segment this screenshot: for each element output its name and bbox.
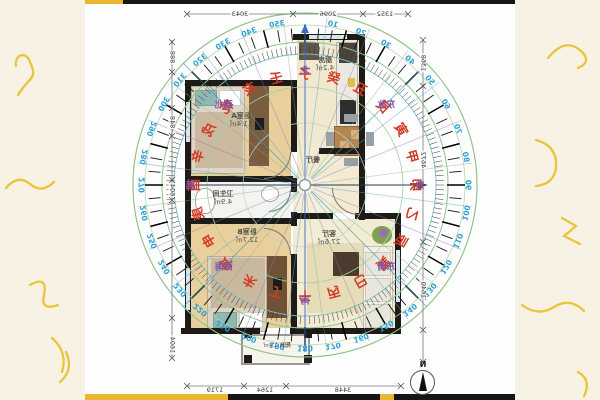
degree-label: 210 — [214, 318, 232, 334]
degree-label: 320 — [191, 52, 209, 69]
room-label-bedroom-b: 卧室B 12.7㎡ — [236, 228, 259, 244]
degree-label: 70 — [452, 123, 464, 136]
dim-bottom-2: 1264 — [256, 387, 275, 394]
room-label-balcony: 阳台 1.4㎡ — [263, 343, 290, 349]
degree-label: 260 — [139, 205, 151, 222]
degree-label: 150 — [377, 318, 395, 334]
room-area: 12.7㎡ — [236, 236, 259, 244]
room-area: 4.9㎡ — [213, 198, 234, 206]
degree-label: 80 — [460, 151, 471, 163]
room-area: 1.4㎡ — [263, 343, 277, 349]
degree-label: 60 — [440, 97, 453, 111]
degree-label: 20 — [354, 26, 367, 38]
degree-label: 350 — [268, 19, 285, 31]
degree-label: 280 — [139, 148, 151, 165]
mountain-label: 丁 — [267, 282, 284, 304]
floorplan-compass-screenshot: { "colors": { "page_bg": "#f7f2e3", "pan… — [0, 0, 600, 400]
degree-label: 120 — [438, 257, 454, 275]
room-label-bedroom-a: 卧室A 11.4㎡ — [230, 112, 253, 128]
degree-label: 90 — [464, 180, 473, 190]
degree-label: 10 — [327, 19, 339, 30]
room-name: 客厅 — [318, 230, 341, 238]
direction-label: 东北 — [377, 97, 395, 110]
direction-label: 南 — [300, 294, 309, 307]
dim-left-2: 848 — [169, 115, 176, 129]
north-label: N — [417, 360, 429, 369]
room-name: 餐厅 — [306, 156, 320, 164]
room-name: 卧室B — [236, 228, 259, 236]
mountain-label: 辰 — [391, 231, 414, 252]
degree-label: 290 — [145, 120, 159, 138]
room-name: 卫生间 — [213, 190, 234, 198]
room-area: 27.6㎡ — [318, 238, 341, 246]
degree-label: 140 — [401, 301, 419, 318]
room-label-bathroom: 卫生间 4.9㎡ — [213, 190, 234, 206]
dim-top-1: 1352 — [376, 11, 395, 18]
mountain-label: 申 — [197, 231, 220, 252]
dim-right-2: 4672 — [420, 151, 427, 170]
degree-label: 250 — [145, 232, 159, 250]
direction-label: 西 — [185, 179, 194, 192]
dim-bottom-3: 1719 — [206, 387, 225, 394]
degree-label: 200 — [240, 331, 258, 345]
degree-label: 230 — [172, 281, 189, 299]
room-name: 阳台 — [280, 343, 291, 349]
dim-right-3: 1640 — [420, 281, 427, 300]
degree-label: 110 — [451, 232, 465, 250]
dim-left-3: 604 — [169, 183, 176, 197]
mountain-label: 戌 — [197, 119, 220, 140]
floorplan-image-panel: 1020304050607080901001101201301401501601… — [85, 0, 515, 400]
degree-label: 240 — [156, 257, 172, 275]
degree-label: 170 — [325, 340, 342, 352]
degree-label: 30 — [380, 37, 394, 50]
direction-label: 西北 — [215, 97, 233, 110]
mountain-label: 乙 — [402, 205, 424, 222]
dim-bottom-1: 3448 — [334, 387, 353, 394]
direction-label: 西南 — [215, 260, 233, 273]
degree-label: 300 — [156, 94, 172, 112]
degree-label: 40 — [403, 53, 417, 67]
mountain-label: 未 — [239, 271, 260, 294]
degree-label: 330 — [214, 36, 232, 52]
mountain-label: 亥 — [239, 77, 260, 100]
dim-left-4: 1604 — [169, 336, 176, 355]
room-label-living: 客厅 27.6㎡ — [318, 230, 341, 246]
room-label-kitchen: 厨房 4.2㎡ — [316, 56, 334, 72]
degree-label: 340 — [240, 25, 258, 39]
room-name: 厨房 — [316, 56, 334, 64]
degree-label: 180 — [297, 344, 313, 353]
decor-doodles-right — [515, 0, 600, 400]
room-label-dining: 餐厅 — [306, 156, 320, 164]
dim-right-1: 1368 — [420, 54, 427, 73]
direction-label: 东 — [415, 179, 424, 192]
mountain-label: 辛 — [186, 147, 208, 164]
degree-label: 310 — [172, 71, 189, 89]
room-area: 4.2㎡ — [316, 64, 334, 72]
decor-doodles-left — [0, 0, 85, 400]
mountain-label: 壬 — [267, 66, 284, 88]
degree-label: 270 — [138, 177, 147, 193]
mountain-label: 巳 — [351, 271, 372, 294]
room-name: 卧室A — [230, 112, 253, 120]
degree-label: 220 — [191, 301, 209, 318]
degree-label: 160 — [352, 331, 370, 345]
direction-label: 北 — [300, 64, 309, 77]
mountain-label: 寅 — [391, 119, 414, 140]
compass-labels-layer: 1020304050607080901001101201301401501601… — [85, 0, 515, 400]
mountain-label: 丑 — [351, 77, 372, 100]
north-needle-icon — [419, 372, 427, 391]
degree-label: 50 — [423, 73, 437, 87]
room-area: 11.4㎡ — [230, 120, 253, 128]
direction-label: 东南 — [377, 260, 395, 273]
mountain-label: 丙 — [325, 282, 342, 304]
dim-top-2: 2096 — [319, 11, 338, 18]
mountain-label: 庚 — [186, 205, 208, 222]
dim-left-1: 888 — [169, 50, 176, 64]
dim-top-3: 3043 — [231, 11, 250, 18]
degree-label: 100 — [460, 205, 472, 222]
